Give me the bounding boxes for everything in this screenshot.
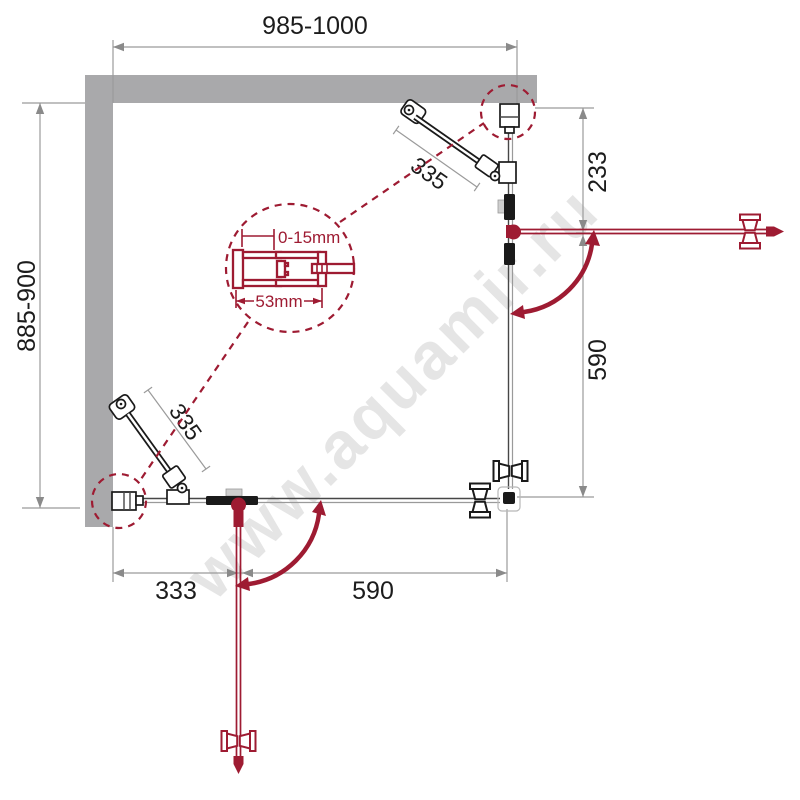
support-arm-top: 335 <box>393 98 516 195</box>
wall-left <box>85 75 113 527</box>
dim-arrow <box>506 43 517 51</box>
dim-arrow <box>36 497 44 508</box>
dim-bottom-right-label: 590 <box>352 577 394 605</box>
screw-icon <box>494 175 497 178</box>
handle-right-door-open <box>740 215 760 249</box>
pivot-right <box>506 225 521 240</box>
support-arm-bottom: 335 <box>108 387 210 504</box>
dim-right-lower-label: 590 <box>584 339 612 381</box>
wall-clamp-top <box>500 104 519 133</box>
wall-clamp-bottom-left <box>112 492 143 510</box>
detail-gap-label: 0-15mm <box>278 228 340 247</box>
arm-top-length-label: 335 <box>406 152 452 195</box>
dim-left-label: 885-900 <box>13 260 41 352</box>
pivot-bottom <box>231 498 246 513</box>
detail-width-label: 53mm <box>255 292 302 311</box>
technical-diagram-canvas: www.aquamir.ru 985-1000 885-900 233 590 … <box>0 0 800 800</box>
dim-arrow <box>113 569 124 577</box>
shower-enclosure-drawing: www.aquamir.ru 985-1000 885-900 233 590 … <box>0 0 800 800</box>
screw-icon <box>408 109 411 112</box>
dim-top-label: 985-1000 <box>262 12 368 40</box>
arm-bottom-glass-clamp <box>167 490 189 504</box>
arm-bottom-length-label: 335 <box>164 399 207 445</box>
door-right-end-cap <box>766 227 784 237</box>
handle-bottom-door-open <box>222 731 256 751</box>
detail-gap-dim <box>242 229 274 250</box>
callout-line-bottom <box>139 322 248 482</box>
handle-right-door-closed <box>494 461 528 481</box>
dim-arrow <box>113 43 124 51</box>
screw-icon <box>181 487 184 490</box>
dim-arrow <box>579 486 587 497</box>
corner-connector <box>503 492 515 504</box>
arm-top-glass-clamp <box>499 162 516 183</box>
dim-arrow <box>496 569 507 577</box>
door-bottom-end-cap <box>234 756 244 774</box>
wall-top <box>85 75 537 103</box>
watermark: www.aquamir.ru <box>171 172 612 613</box>
profile-detail: 0-15mm 53mm <box>233 228 354 311</box>
screw-icon <box>120 403 123 406</box>
dim-right-upper-label: 233 <box>584 151 612 193</box>
handle-bottom-door-closed <box>470 484 490 518</box>
dim-bottom-left-label: 333 <box>155 577 197 605</box>
dim-arrow <box>36 103 44 114</box>
dim-arrow <box>579 108 587 119</box>
